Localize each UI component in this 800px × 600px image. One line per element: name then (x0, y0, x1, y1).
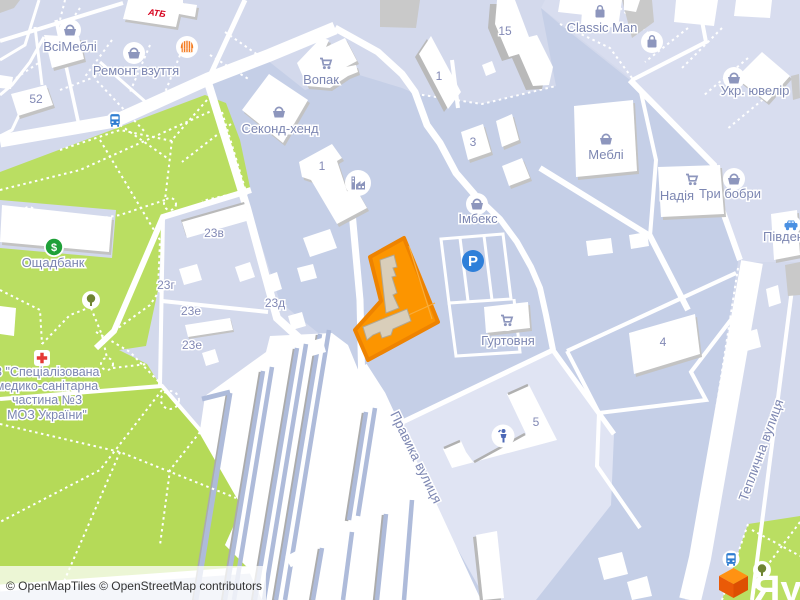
svg-text:1: 1 (436, 69, 443, 83)
svg-text:Меблі: Меблі (588, 147, 624, 162)
svg-text:частина №3: частина №3 (12, 393, 82, 407)
svg-text:Classic Man: Classic Man (567, 20, 638, 35)
svg-text:МОЗ України": МОЗ України" (7, 408, 87, 422)
svg-text:1: 1 (319, 159, 326, 173)
svg-text:Укр. ювелір: Укр. ювелір (721, 83, 790, 98)
svg-text:23е: 23е (182, 338, 202, 352)
svg-text:Південний: Південний (763, 229, 800, 244)
svg-text:Вопак: Вопак (303, 72, 339, 87)
svg-text:15: 15 (498, 24, 512, 38)
svg-text:23в: 23в (204, 226, 224, 240)
svg-text:© OpenMapTiles © OpenStreetMap: © OpenMapTiles © OpenStreetMap contribut… (6, 579, 262, 593)
svg-text:Яун: Яун (753, 569, 800, 600)
svg-text:23г: 23г (157, 278, 175, 292)
svg-text:23е: 23е (181, 304, 201, 318)
svg-text:Надія: Надія (660, 188, 694, 203)
svg-text:3: 3 (470, 135, 477, 149)
svg-text:4: 4 (660, 335, 667, 349)
svg-text:ВсіМеблі: ВсіМеблі (43, 39, 97, 54)
svg-text:Гуртовня: Гуртовня (481, 333, 535, 348)
svg-text:$: $ (51, 242, 57, 254)
svg-text:медико-санітарна: медико-санітарна (0, 379, 98, 393)
svg-text:Три бобри: Три бобри (699, 186, 761, 201)
svg-text:Ощадбанк: Ощадбанк (22, 255, 85, 270)
svg-text:23д: 23д (265, 296, 285, 310)
svg-text:З "Спеціалізована: З "Спеціалізована (0, 365, 100, 379)
svg-text:Ремонт взуття: Ремонт взуття (93, 63, 179, 78)
svg-text:5: 5 (533, 415, 540, 429)
svg-text:P: P (468, 253, 478, 270)
svg-text:52: 52 (29, 92, 43, 106)
svg-text:Імбекс: Імбекс (458, 211, 498, 226)
svg-text:Секонд-хенд: Секонд-хенд (241, 121, 319, 136)
